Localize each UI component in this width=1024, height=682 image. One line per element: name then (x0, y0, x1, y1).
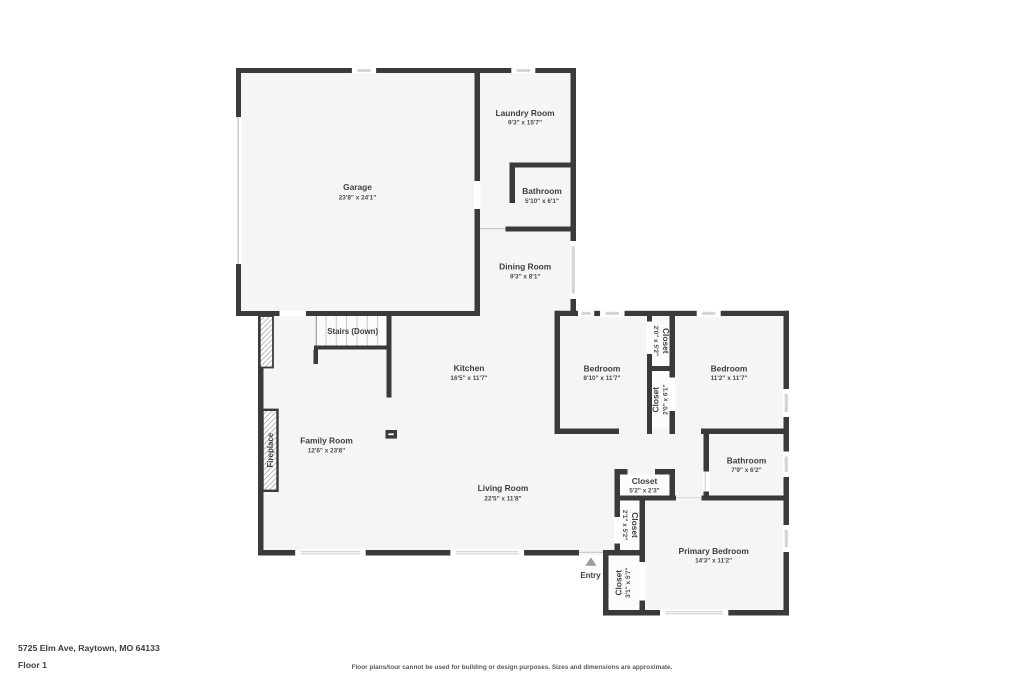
svg-text:8'10" x 11'7": 8'10" x 11'7" (583, 375, 620, 382)
svg-text:9'3" x 8'1": 9'3" x 8'1" (510, 273, 540, 280)
svg-text:Bathroom: Bathroom (727, 456, 767, 466)
svg-text:Stairs (Down): Stairs (Down) (327, 327, 378, 336)
svg-text:5'2" x 2'3": 5'2" x 2'3" (629, 487, 659, 494)
svg-text:Bedroom: Bedroom (584, 364, 621, 374)
svg-text:5'10" x 6'1": 5'10" x 6'1" (525, 198, 559, 205)
svg-text:3'1" x 5'7": 3'1" x 5'7" (625, 567, 632, 597)
svg-text:Closet: Closet (651, 387, 661, 413)
svg-text:Family Room: Family Room (300, 436, 353, 446)
svg-text:12'6" x 23'8": 12'6" x 23'8" (308, 448, 346, 455)
svg-text:Dining Room: Dining Room (499, 262, 551, 272)
svg-text:Kitchen: Kitchen (454, 363, 485, 373)
svg-text:23'8" x 24'1": 23'8" x 24'1" (339, 195, 377, 202)
svg-text:Floor plans/tour cannot be use: Floor plans/tour cannot be used for buil… (352, 664, 673, 671)
svg-text:11'2" x 11'7": 11'2" x 11'7" (711, 375, 748, 382)
svg-text:Entry: Entry (580, 571, 601, 580)
svg-text:14'3" x 11'2": 14'3" x 11'2" (695, 557, 732, 564)
svg-text:Bathroom: Bathroom (522, 186, 562, 196)
svg-text:Bedroom: Bedroom (711, 364, 748, 374)
svg-text:2'1" x 5'2": 2'1" x 5'2" (621, 510, 628, 540)
svg-text:16'5" x 11'7": 16'5" x 11'7" (450, 375, 487, 382)
svg-text:Closet: Closet (632, 476, 658, 486)
svg-text:Laundry Room: Laundry Room (495, 108, 554, 118)
svg-text:Floor 1: Floor 1 (18, 660, 47, 670)
svg-text:5725 Elm Ave, Raytown, MO 6413: 5725 Elm Ave, Raytown, MO 64133 (18, 643, 160, 653)
svg-text:Closet: Closet (630, 512, 640, 538)
svg-text:Living Room: Living Room (478, 483, 529, 493)
svg-text:Primary Bedroom: Primary Bedroom (679, 546, 749, 556)
svg-text:9'3" x 15'7": 9'3" x 15'7" (508, 120, 542, 127)
svg-text:22'5" x 11'8": 22'5" x 11'8" (484, 495, 521, 502)
svg-text:Fireplace: Fireplace (266, 432, 275, 467)
svg-text:Garage: Garage (343, 182, 372, 192)
svg-text:2'0" x 5'2": 2'0" x 5'2" (652, 326, 659, 356)
svg-text:Closet: Closet (661, 328, 671, 354)
svg-text:2'0" x 6'1": 2'0" x 6'1" (662, 384, 669, 414)
svg-text:7'9" x 6'2": 7'9" x 6'2" (731, 467, 761, 474)
svg-text:Closet: Closet (613, 570, 623, 596)
